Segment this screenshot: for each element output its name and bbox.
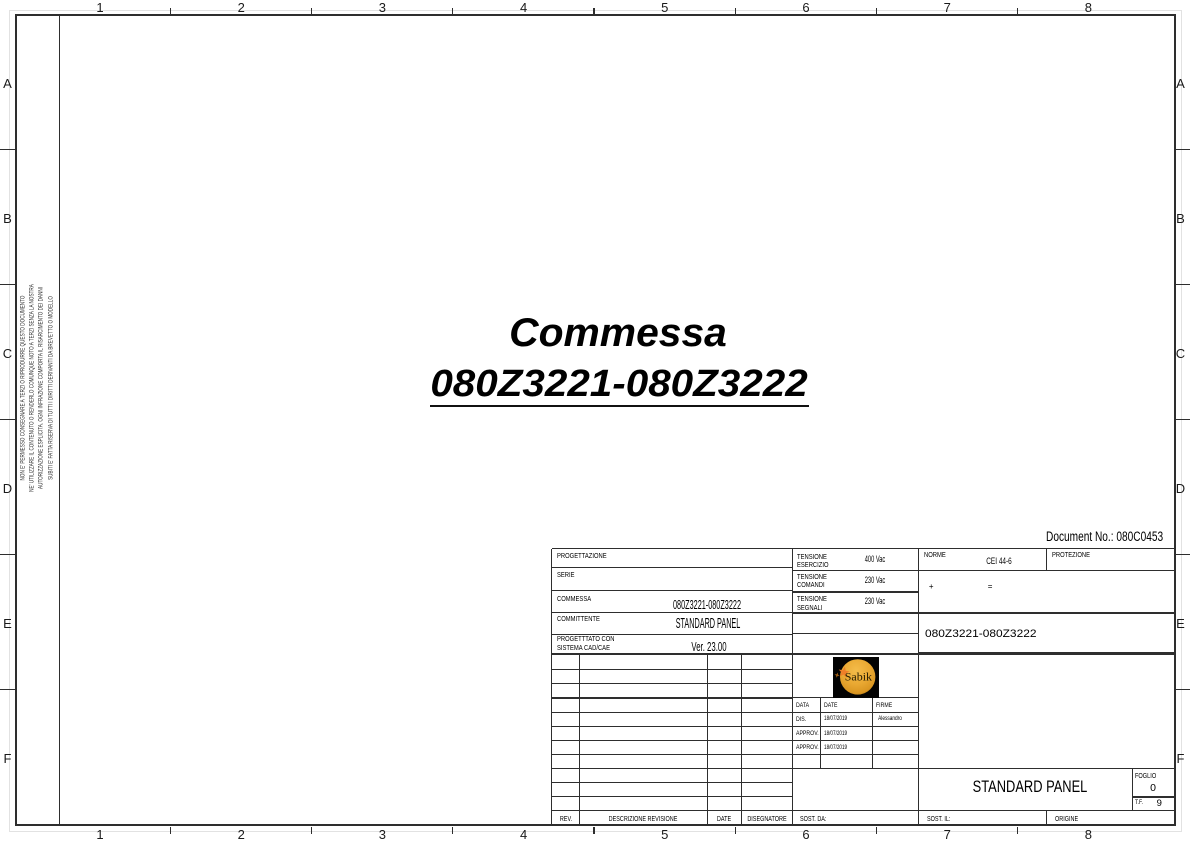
svg-text:Sabik: Sabik xyxy=(845,670,872,684)
